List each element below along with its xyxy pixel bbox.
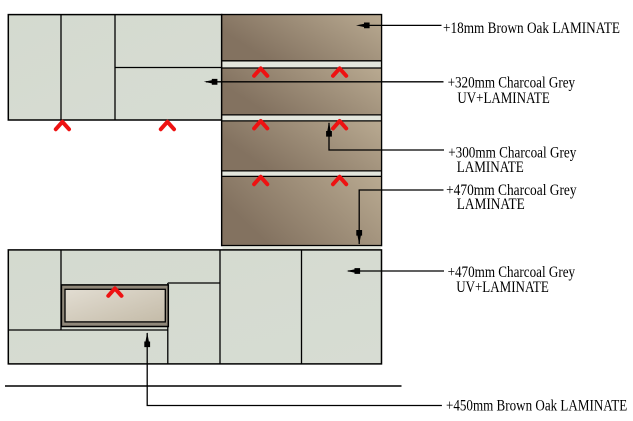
svg-text:+18mm Brown Oak LAMINATE: +18mm Brown Oak LAMINATE xyxy=(443,20,620,37)
svg-text:LAMINATE: LAMINATE xyxy=(457,196,525,213)
svg-text:UV+LAMINATE: UV+LAMINATE xyxy=(456,279,549,296)
svg-text:LAMINATE: LAMINATE xyxy=(457,159,524,176)
svg-text:UV+LAMINATE: UV+LAMINATE xyxy=(457,90,549,107)
svg-text:+320mm Charcoal Grey: +320mm Charcoal Grey xyxy=(448,74,575,91)
svg-text:+450mm Brown Oak LAMINATE: +450mm Brown Oak LAMINATE xyxy=(446,398,627,415)
